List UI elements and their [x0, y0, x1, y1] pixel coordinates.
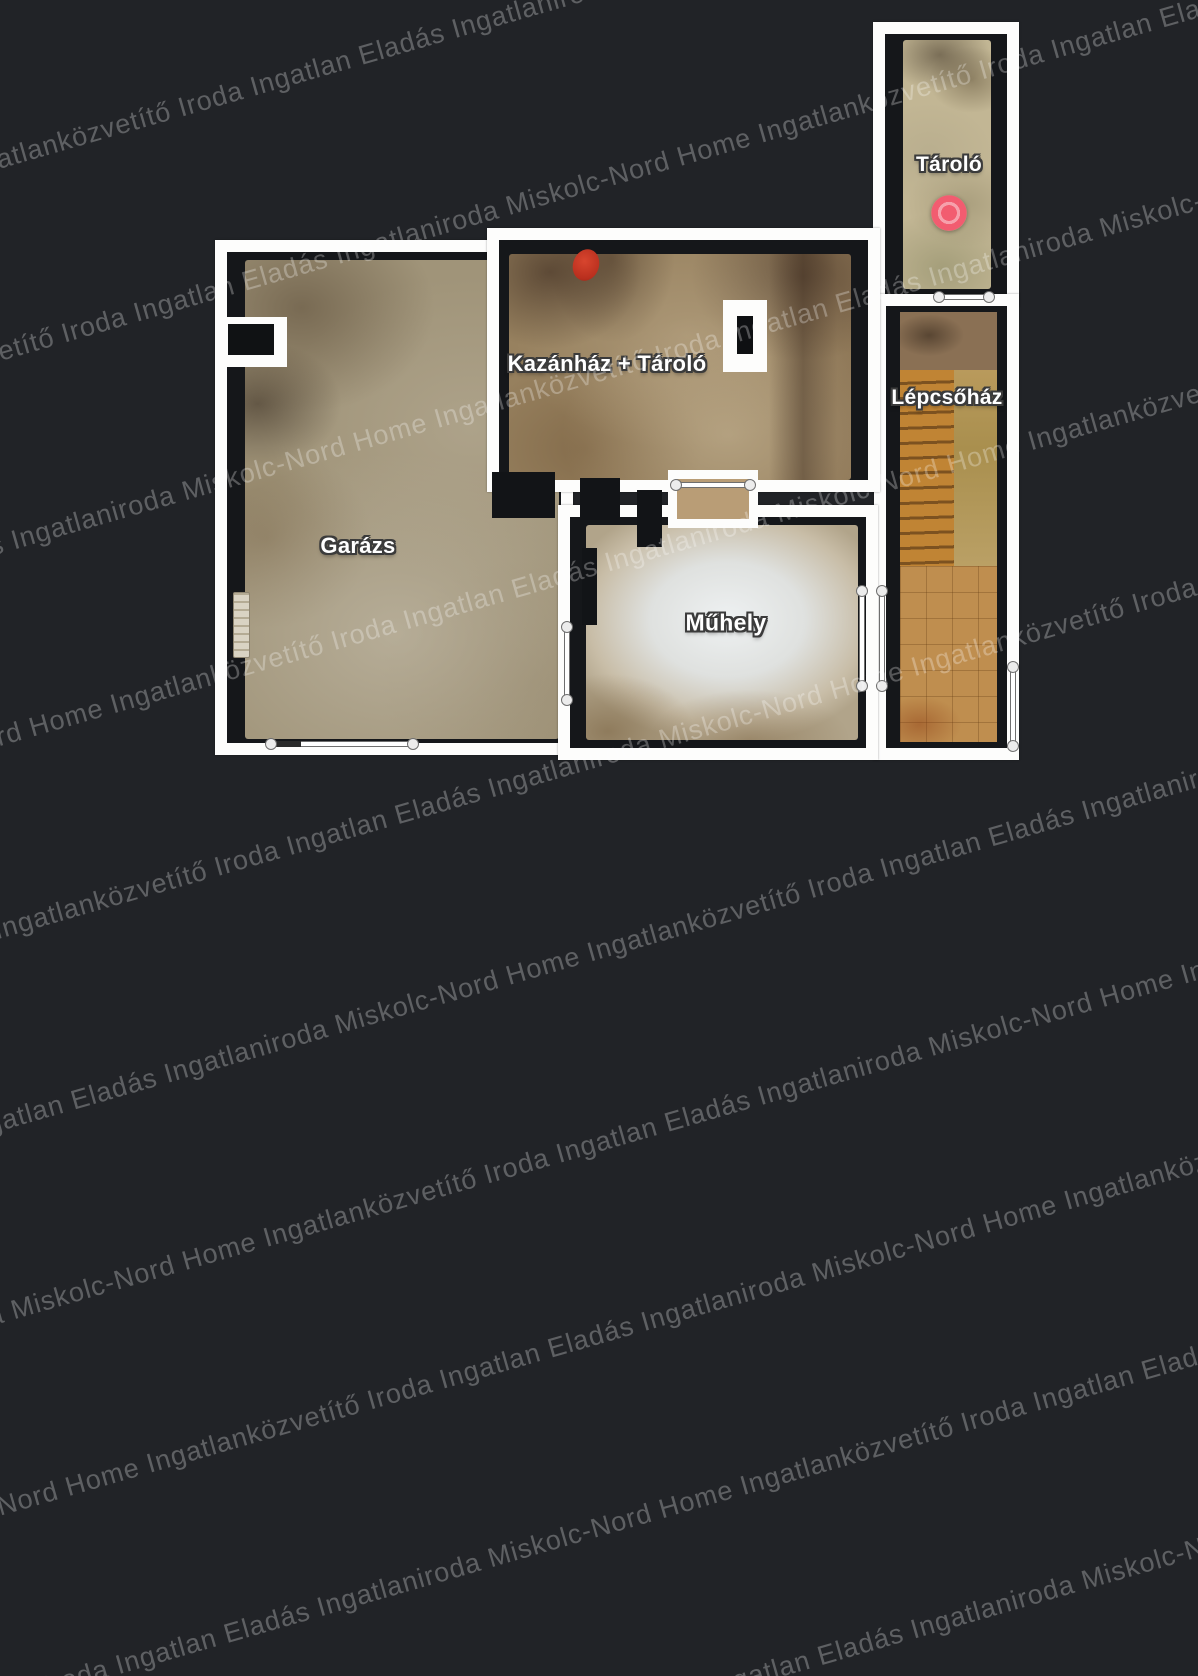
room-lepcsohaz-cavity: [886, 306, 1007, 748]
room-label-muhely: Műhely: [685, 610, 766, 637]
room-label-tarolo: Tároló: [916, 153, 982, 177]
wall-void: [492, 472, 555, 518]
interior-door-jamb: [723, 300, 767, 372]
door-knob-icon: [670, 479, 682, 491]
wall-void: [580, 478, 620, 520]
watermark-text: Ingatlaniroda Miskolc-Nord Home Ingatlan…: [0, 1070, 1198, 1676]
room-label-lepcsohaz: Lépcsőház: [891, 386, 1002, 410]
door-symbol-muhely-lepcsohaz-outer: [856, 585, 868, 692]
wall-void: [582, 548, 597, 625]
room-lepcsohaz: [874, 294, 1019, 760]
door-knob-icon: [856, 585, 868, 597]
door-knob-icon: [265, 738, 277, 750]
door-knob-icon: [876, 585, 888, 597]
garage-wall-niche: [215, 317, 287, 367]
room-label-garazs: Garázs: [320, 533, 395, 559]
door-knob-icon: [933, 291, 945, 303]
door-knob-icon: [561, 621, 573, 633]
wall-void: [637, 490, 662, 547]
door-symbol-kazanhaz-muhely: [670, 479, 756, 491]
door-symbol-lepcsohaz-exit: [1007, 661, 1019, 752]
door-knob-icon: [744, 479, 756, 491]
door-symbol-tarolo: [933, 291, 995, 303]
door-jamb-void: [737, 316, 753, 354]
corridor-tiled-floor: [900, 566, 997, 742]
door-knob-icon: [1007, 661, 1019, 673]
room-label-kazanhaz-tarolo: Kazánház + Tároló: [508, 351, 707, 377]
garage-wall-niche-void: [228, 324, 274, 355]
radiator: [233, 592, 250, 658]
door-knob-icon: [983, 291, 995, 303]
door-knob-icon: [407, 738, 419, 750]
door-symbol-muhely-left: [561, 621, 573, 706]
floor-plan: Garázs Kazánház + Tároló Műhely Tároló L…: [0, 0, 1198, 838]
watermark-text: Ingatlaniroda Miskolc-Nord Home Ingatlan…: [0, 784, 1198, 1601]
corridor-entry-floor: [900, 312, 997, 370]
door-symbol-garazs: [265, 738, 419, 750]
door-knob-icon: [876, 680, 888, 692]
door-symbol-muhely-lepcsohaz-inner: [876, 585, 888, 692]
watermark-text: Ingatlaniroda Miskolc-Nord Home Ingatlan…: [0, 821, 1198, 1638]
watermark-text: Ingatlaniroda Miskolc-Nord Home Ingatlan…: [0, 1355, 1198, 1676]
door-knob-icon: [856, 680, 868, 692]
door-knob-icon: [1007, 740, 1019, 752]
door-knob-icon: [561, 694, 573, 706]
door-leaf: [273, 741, 301, 747]
scan-point-marker[interactable]: [931, 195, 967, 231]
